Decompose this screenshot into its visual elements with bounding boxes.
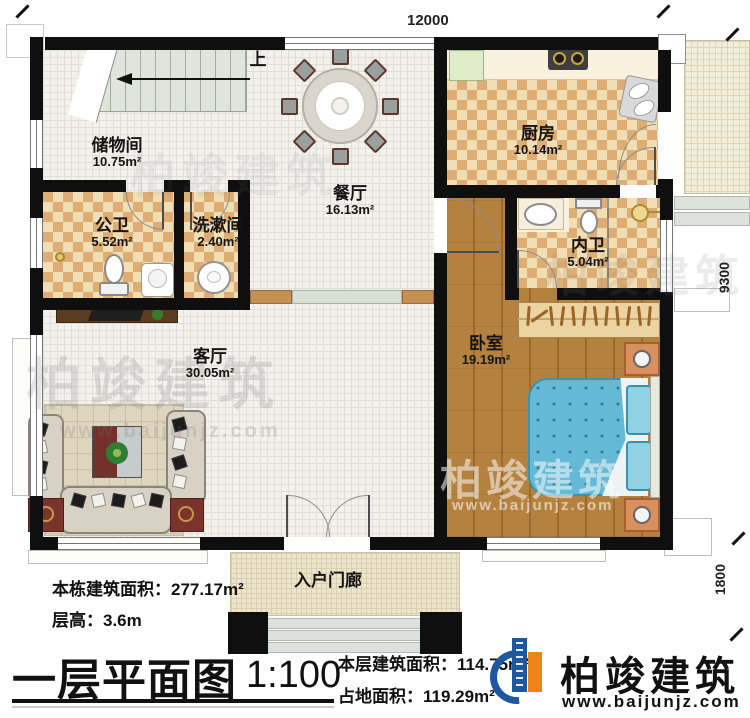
window-sill-bottom-bedroom	[482, 550, 606, 562]
sofa-pillow	[172, 436, 187, 451]
wall	[505, 198, 517, 288]
wall	[370, 537, 487, 550]
logo-building-orange	[528, 652, 542, 692]
wall	[200, 537, 284, 550]
wall	[30, 537, 58, 550]
axis-tick	[731, 531, 745, 545]
inner-toilet-tank	[575, 198, 602, 209]
wall	[164, 180, 190, 192]
window	[30, 120, 43, 168]
terrace	[684, 40, 750, 194]
wall	[30, 37, 43, 120]
wall	[434, 37, 447, 198]
porch-pillar	[420, 612, 462, 654]
wall	[434, 253, 447, 537]
wall	[557, 288, 660, 300]
tv	[88, 309, 144, 321]
stove-burner	[553, 52, 566, 65]
logo-building-windows	[516, 642, 523, 686]
toilet-tank	[99, 282, 129, 296]
window	[285, 37, 435, 50]
wall	[30, 168, 43, 218]
side-table-medallion	[178, 506, 194, 522]
wall	[435, 37, 660, 50]
room-label-living: 客厅30.05m²	[170, 347, 250, 381]
divider-cabinet	[250, 290, 292, 304]
porch-step	[266, 618, 422, 629]
room-label-kitchen: 厨房10.14m²	[498, 124, 578, 158]
table-plant	[106, 442, 128, 464]
dimension-right-lower: 1800	[712, 564, 728, 595]
divider-cabinet	[402, 290, 434, 304]
terrace-step	[674, 212, 750, 226]
wall	[30, 298, 250, 310]
nightstand-lamp	[633, 506, 651, 524]
stairs-arrow-icon	[116, 73, 132, 85]
washing-machine-door	[148, 269, 167, 288]
window	[487, 537, 600, 550]
brand-logo-icon	[490, 636, 558, 712]
room-label-washroom: 洗漱间2.40m²	[178, 216, 258, 250]
sofa-pillow	[111, 493, 126, 508]
bedroom-door-leaf	[447, 251, 499, 253]
terrace-step	[674, 196, 750, 210]
inner-bath-sink	[524, 203, 557, 226]
dimension-right-upper: 9300	[716, 262, 732, 293]
room-label-public-bath: 公卫5.52m²	[72, 216, 152, 250]
shower-head	[631, 204, 649, 222]
plan-scale: 1:100	[246, 654, 341, 697]
wall	[45, 37, 285, 50]
floor-height-text: 层高：3.6m	[52, 606, 142, 631]
dining-chair	[281, 98, 298, 115]
toilet-bowl	[104, 254, 124, 284]
bed-headboard	[650, 376, 660, 498]
bed-pillow	[626, 385, 652, 435]
dining-chair	[332, 148, 349, 165]
inner-toilet-bowl	[580, 210, 598, 234]
room-label-inner-bath: 内卫5.04m²	[548, 236, 628, 270]
stove-burner	[571, 52, 584, 65]
room-label-dining: 餐厅16.13m²	[310, 184, 390, 218]
window	[660, 220, 673, 292]
window	[30, 218, 43, 268]
bed-pillow	[626, 441, 652, 491]
fridge	[449, 50, 484, 81]
tv-plant	[152, 309, 163, 320]
porch-step	[266, 630, 422, 641]
sofa-pillow	[172, 474, 187, 489]
dimension-top: 12000	[407, 12, 449, 29]
nightstand-lamp	[633, 350, 651, 368]
wall	[505, 288, 519, 300]
wall	[656, 185, 673, 198]
floor-plan: 上	[0, 0, 750, 718]
dining-chair	[382, 98, 399, 115]
axis-tick	[15, 4, 29, 18]
axis-tick	[656, 4, 670, 18]
wall	[434, 185, 620, 198]
window-sill-bottom-living	[28, 550, 208, 564]
building-area-text: 本栋建筑面积：277.17m²	[52, 575, 244, 600]
sofa-pillow	[91, 493, 106, 508]
brand-site: www.baijunjz.com	[562, 692, 741, 712]
divider-glass	[292, 290, 402, 304]
window	[30, 335, 43, 496]
title-underline-thin	[12, 706, 334, 708]
sofa-pillow	[149, 493, 164, 508]
room-label-porch: 入户门廊	[288, 571, 368, 590]
wash-basin-drain	[207, 271, 221, 283]
stairs-up-label: 上	[246, 50, 270, 69]
room-label-bedroom: 卧室19.19m²	[446, 334, 526, 368]
wall	[658, 50, 671, 112]
room-label-storage: 储物间10.75m²	[77, 136, 157, 170]
dining-table-center	[331, 97, 349, 115]
floor-drain	[55, 252, 65, 262]
title-underline	[12, 699, 334, 703]
dining-chair	[332, 48, 349, 65]
entry-door-leaf	[368, 495, 370, 537]
axis-tick	[729, 627, 743, 641]
wall	[43, 180, 126, 192]
stairs-direction-line	[132, 78, 250, 80]
footprint-area-text: 占地面积：119.29m²	[338, 682, 495, 707]
window	[58, 537, 200, 550]
